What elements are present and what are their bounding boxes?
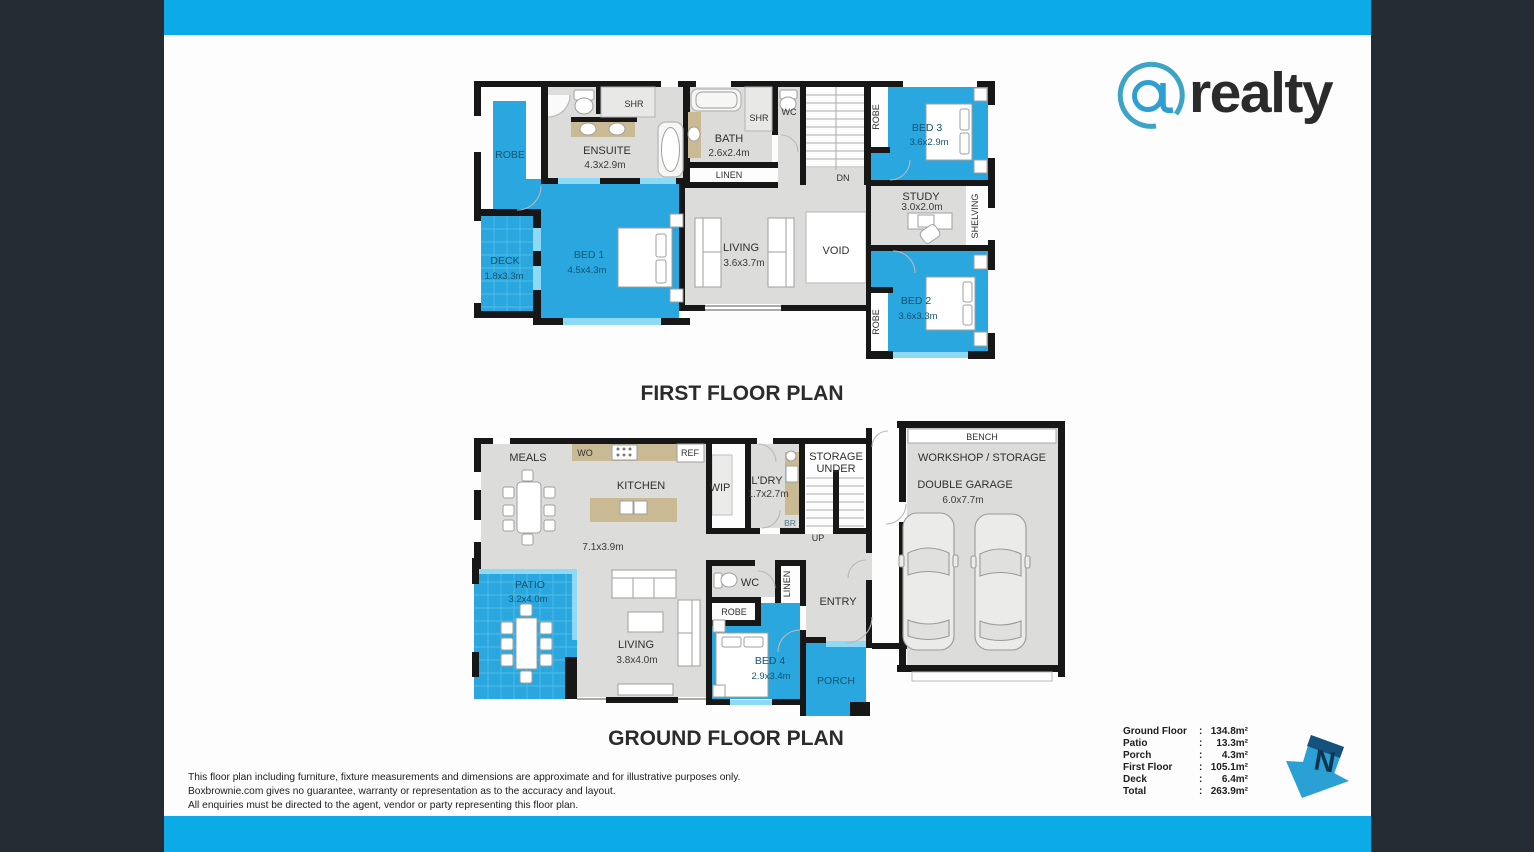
svg-text:4.5x4.3m: 4.5x4.3m — [567, 265, 606, 276]
svg-text:ROBE: ROBE — [495, 149, 525, 161]
svg-text:ROBE: ROBE — [721, 607, 747, 617]
svg-text:UNDER: UNDER — [816, 463, 855, 475]
svg-text:ENTRY: ENTRY — [819, 596, 857, 608]
svg-text:1.7x2.7m: 1.7x2.7m — [747, 489, 788, 500]
svg-text::: : — [1199, 750, 1202, 761]
svg-text:4.3m²: 4.3m² — [1222, 750, 1249, 761]
svg-text:All enquiries must be directed: All enquiries must be directed to the ag… — [188, 800, 578, 811]
svg-text:MEALS: MEALS — [509, 452, 546, 464]
svg-text:First Floor: First Floor — [1123, 762, 1173, 773]
svg-text:L'DRY: L'DRY — [751, 475, 783, 487]
svg-text:263.9m²: 263.9m² — [1211, 786, 1249, 797]
svg-text:PATIO: PATIO — [515, 579, 545, 591]
svg-text:PORCH: PORCH — [817, 675, 855, 687]
svg-text:134.8m²: 134.8m² — [1211, 726, 1249, 737]
svg-text:6.0x7.7m: 6.0x7.7m — [942, 495, 983, 506]
svg-text:LINEN: LINEN — [716, 170, 743, 180]
svg-text::: : — [1199, 774, 1202, 785]
svg-text:BED 2: BED 2 — [901, 295, 932, 307]
svg-text:LIVING: LIVING — [618, 639, 654, 651]
svg-text:3.8x4.0m: 3.8x4.0m — [616, 655, 657, 666]
svg-text:LINEN: LINEN — [782, 571, 792, 598]
svg-text:BENCH: BENCH — [966, 432, 998, 442]
svg-text:UP: UP — [812, 533, 825, 543]
svg-text:DECK: DECK — [490, 255, 519, 267]
svg-text:VOID: VOID — [823, 245, 850, 257]
svg-text:13.3m²: 13.3m² — [1216, 738, 1248, 749]
svg-text:Ground Floor: Ground Floor — [1123, 726, 1187, 737]
svg-text:SHELVING: SHELVING — [970, 194, 980, 239]
svg-text:3.6x2.9m: 3.6x2.9m — [909, 137, 948, 148]
svg-text:WC: WC — [741, 577, 759, 589]
svg-text::: : — [1199, 738, 1202, 749]
svg-text:FIRST FLOOR PLAN: FIRST FLOOR PLAN — [641, 382, 844, 405]
svg-text:7.1x3.9m: 7.1x3.9m — [582, 542, 623, 553]
svg-text:105.1m²: 105.1m² — [1211, 762, 1249, 773]
svg-text::: : — [1199, 726, 1202, 737]
svg-text:Porch: Porch — [1123, 750, 1151, 761]
svg-text:3.2x4.0m: 3.2x4.0m — [508, 594, 547, 605]
svg-text:BED 1: BED 1 — [574, 249, 605, 261]
svg-text:This floor plan including furn: This floor plan including furniture, fix… — [188, 772, 740, 783]
svg-text:Total: Total — [1123, 786, 1146, 797]
svg-text:3.6x3.3m: 3.6x3.3m — [898, 311, 937, 322]
svg-text:WC: WC — [782, 107, 797, 117]
svg-text:6.4m²: 6.4m² — [1222, 774, 1249, 785]
svg-text:SHR: SHR — [624, 99, 644, 109]
svg-text:DN: DN — [837, 173, 850, 183]
svg-text:LIVING: LIVING — [723, 242, 759, 254]
svg-text:3.0x2.0m: 3.0x2.0m — [901, 202, 942, 213]
svg-text:WORKSHOP / STORAGE: WORKSHOP / STORAGE — [918, 452, 1046, 464]
svg-text:BED 4: BED 4 — [755, 655, 786, 667]
svg-text:Boxbrownie.com gives no guaran: Boxbrownie.com gives no guarantee, warra… — [188, 786, 616, 797]
svg-text:ROBE: ROBE — [871, 104, 881, 130]
svg-text:ENSUITE: ENSUITE — [583, 145, 631, 157]
svg-text:WO: WO — [577, 448, 593, 458]
svg-text:2.6x2.4m: 2.6x2.4m — [708, 148, 749, 159]
svg-text:2.9x3.4m: 2.9x3.4m — [751, 671, 790, 682]
svg-text:3.6x3.7m: 3.6x3.7m — [723, 258, 764, 269]
svg-text::: : — [1199, 786, 1202, 797]
svg-text:ROBE: ROBE — [871, 309, 881, 335]
svg-text:REF: REF — [681, 448, 700, 458]
svg-text:BR: BR — [784, 518, 796, 528]
svg-text:KITCHEN: KITCHEN — [617, 480, 665, 492]
svg-text:DOUBLE GARAGE: DOUBLE GARAGE — [917, 479, 1012, 491]
svg-text:1.8x3.3m: 1.8x3.3m — [484, 271, 523, 282]
svg-text::: : — [1199, 762, 1202, 773]
svg-text:Patio: Patio — [1123, 738, 1147, 749]
svg-text:GROUND FLOOR PLAN: GROUND FLOOR PLAN — [608, 727, 844, 750]
svg-text:STORAGE: STORAGE — [809, 451, 863, 463]
svg-text:WIP: WIP — [710, 482, 731, 494]
svg-text:Deck: Deck — [1123, 774, 1147, 785]
svg-text:4.3x2.9m: 4.3x2.9m — [584, 160, 625, 171]
svg-text:SHR: SHR — [749, 113, 769, 123]
svg-text:BED 3: BED 3 — [912, 122, 943, 134]
svg-text:realty: realty — [1189, 61, 1334, 125]
svg-text:BATH: BATH — [715, 133, 744, 145]
